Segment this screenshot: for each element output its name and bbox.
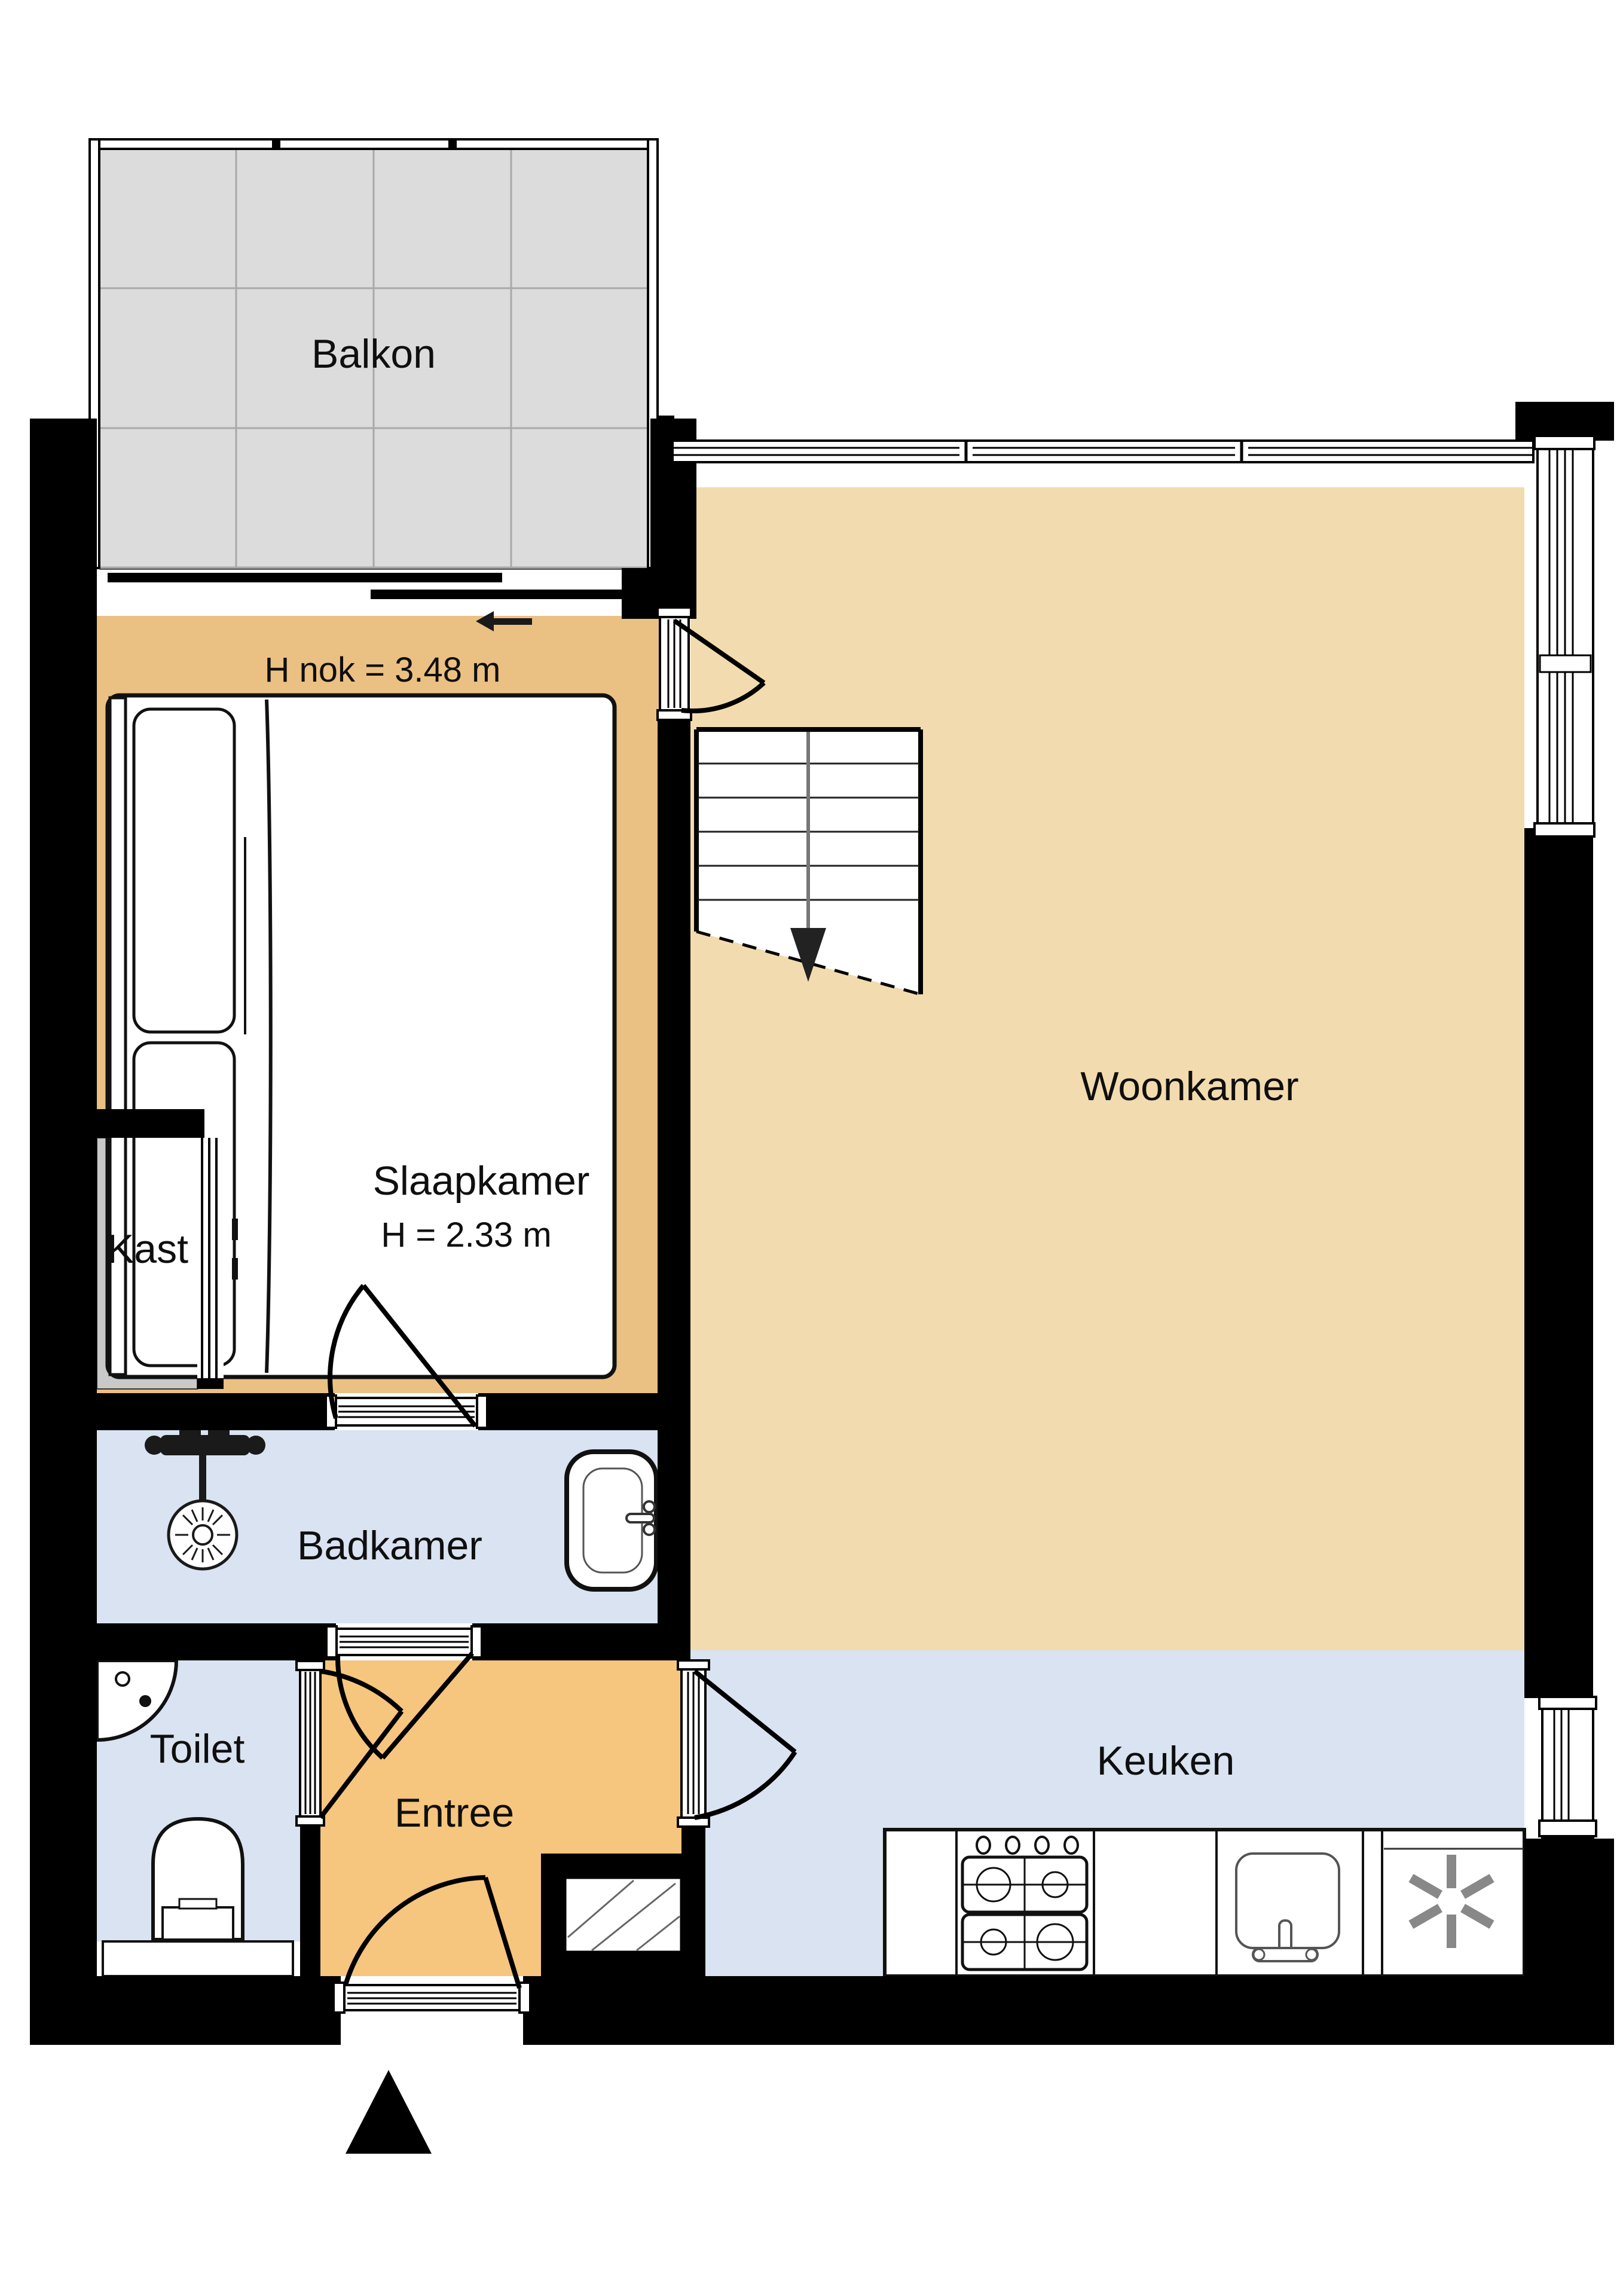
closet-label: Kast	[107, 1226, 188, 1272]
livingroom-label: Woonkamer	[1080, 1064, 1298, 1109]
kitchen-counter	[885, 1830, 1524, 1976]
bathroom-label: Badkamer	[297, 1523, 482, 1568]
toilet-shelf	[103, 1941, 293, 1976]
bed	[108, 695, 615, 1377]
floorplan-canvas: Balkon H nok = 3.48 m Slaapkamer H = 2.3…	[0, 0, 1623, 2296]
bedroom-label: Slaapkamer	[373, 1158, 590, 1204]
stove-icon	[962, 1837, 1087, 1970]
window-right	[1535, 436, 1594, 836]
ridge-height-label: H nok = 3.48 m	[265, 651, 501, 689]
shaft-hatch	[565, 1877, 681, 1952]
closet-sliding-door-icon	[197, 1138, 224, 1389]
entrance-arrow-icon	[346, 2070, 432, 2154]
sliding-door-icon	[99, 569, 648, 599]
balcony-label: Balkon	[311, 331, 436, 377]
toilet-label: Toilet	[150, 1726, 245, 1772]
bedroom-height-label: H = 2.33 m	[381, 1216, 551, 1254]
bed-headboard	[110, 698, 126, 1375]
pillow	[134, 709, 234, 1032]
bathroom-sink-icon	[567, 1452, 656, 1589]
entry-label: Entree	[395, 1790, 514, 1836]
window-kitchen	[1539, 1697, 1596, 1839]
window-top	[673, 441, 1533, 462]
kitchen-label: Keuken	[1097, 1738, 1235, 1784]
